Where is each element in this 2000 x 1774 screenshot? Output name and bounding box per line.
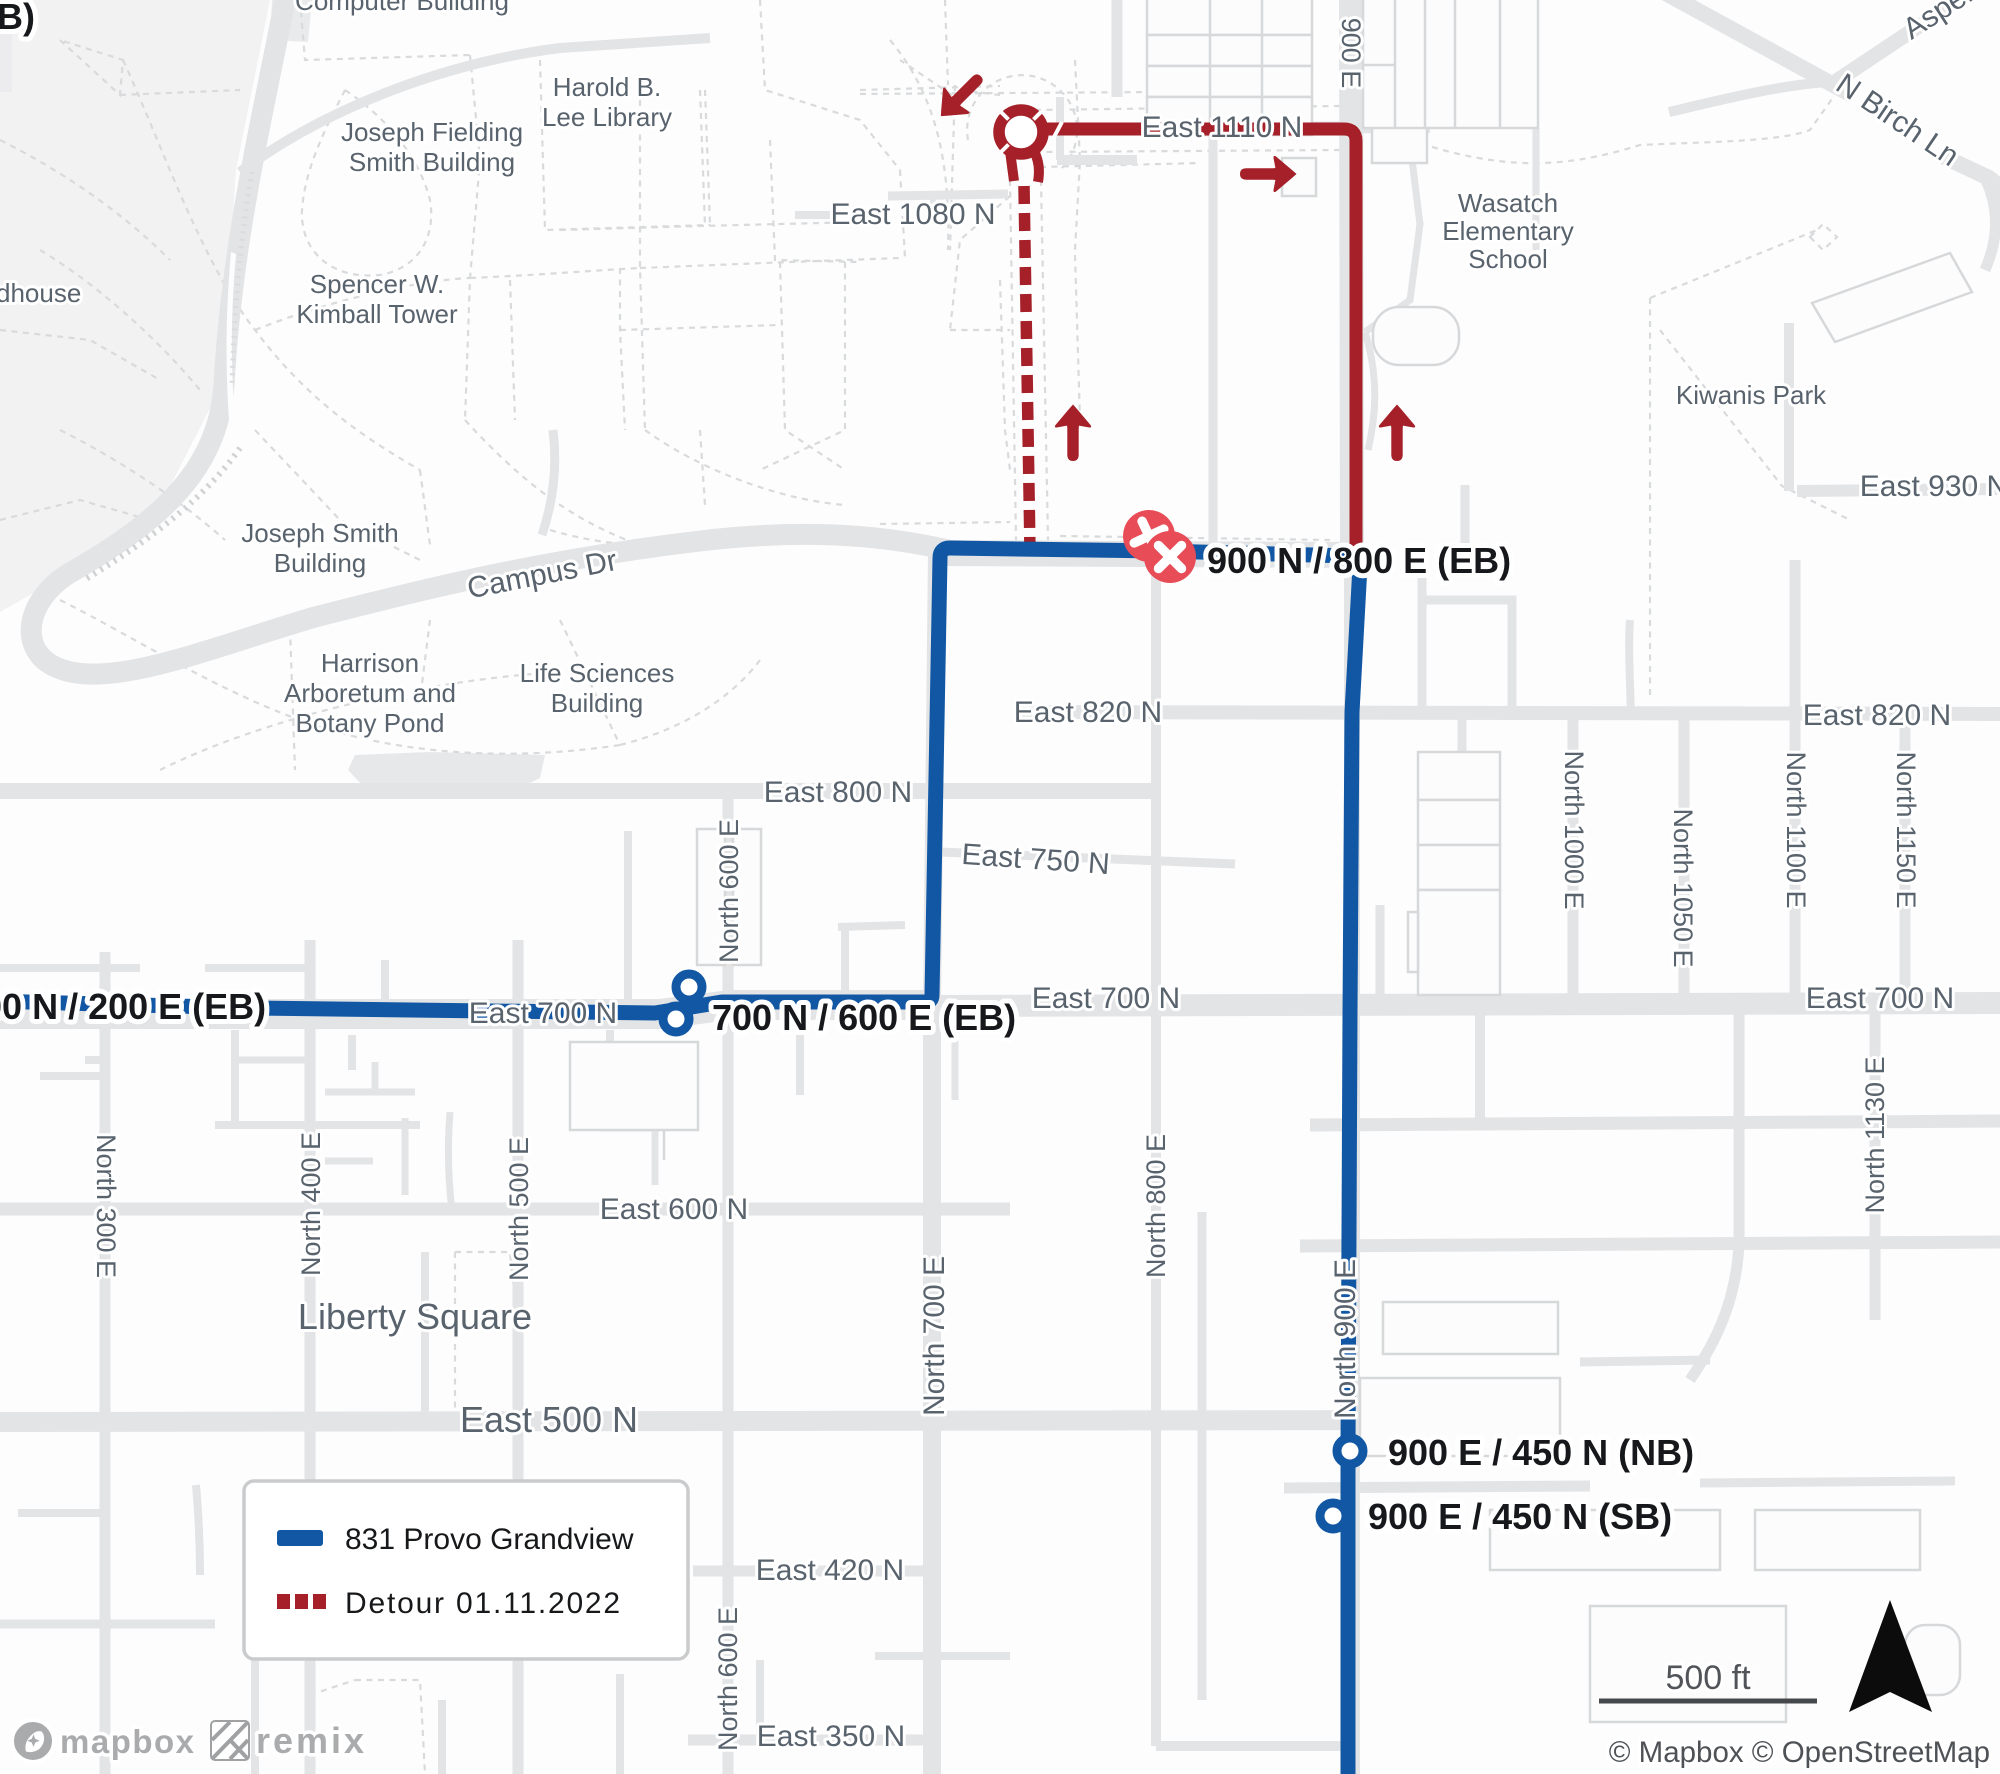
svg-text:Detour 01.11.2022: Detour 01.11.2022 xyxy=(345,1587,622,1620)
svg-text:900 N / 800 E (EB): 900 N / 800 E (EB) xyxy=(1207,540,1511,581)
svg-text:Lee Library: Lee Library xyxy=(542,102,672,132)
svg-text:East 820 N: East 820 N xyxy=(1014,696,1162,729)
svg-text:831 Provo Grandview: 831 Provo Grandview xyxy=(345,1523,634,1556)
svg-text:Joseph Fielding: Joseph Fielding xyxy=(341,117,523,147)
svg-text:Building: Building xyxy=(551,688,644,718)
svg-text:School: School xyxy=(1468,244,1548,274)
svg-text:Kiwanis Park: Kiwanis Park xyxy=(1676,380,1827,410)
svg-text:Smith Building: Smith Building xyxy=(349,147,515,177)
svg-text:East 820 N: East 820 N xyxy=(1803,699,1951,732)
svg-text:North 1100 E: North 1100 E xyxy=(1781,751,1811,908)
svg-text:700 N / 600 E (EB): 700 N / 600 E (EB) xyxy=(712,997,1016,1038)
svg-text:North 700 E: North 700 E xyxy=(918,1256,951,1416)
svg-text:East 420 N: East 420 N xyxy=(756,1554,904,1587)
svg-text:East 600 N: East 600 N xyxy=(600,1193,748,1226)
svg-text:Wasatch: Wasatch xyxy=(1458,188,1558,218)
svg-text:Elementary: Elementary xyxy=(1442,216,1574,246)
svg-text:Harold B.: Harold B. xyxy=(553,72,661,102)
svg-text:Harrison: Harrison xyxy=(321,648,419,678)
svg-text:North 1150 E: North 1150 E xyxy=(1891,751,1921,908)
svg-text:East 700 N: East 700 N xyxy=(469,997,617,1030)
svg-text:Liberty Square: Liberty Square xyxy=(298,1296,532,1337)
svg-text:500 ft: 500 ft xyxy=(1665,1659,1751,1697)
svg-text:North 600 E: North 600 E xyxy=(713,1607,743,1751)
svg-text:Life Sciences: Life Sciences xyxy=(520,658,675,688)
svg-text:East 930 N: East 930 N xyxy=(1860,470,2000,503)
svg-text:Kimball Tower: Kimball Tower xyxy=(296,299,458,329)
svg-text:North 1000 E: North 1000 E xyxy=(1559,750,1589,909)
svg-text:East 800 N: East 800 N xyxy=(764,776,912,809)
svg-text:Building: Building xyxy=(274,548,367,578)
svg-text:North 1050 E: North 1050 E xyxy=(1668,808,1698,967)
svg-text:North 500 E: North 500 E xyxy=(504,1137,534,1281)
svg-text:dhouse: dhouse xyxy=(0,278,81,308)
svg-text:remix: remix xyxy=(256,1720,367,1761)
svg-text:Spencer W.: Spencer W. xyxy=(310,269,444,299)
svg-text:Joseph Smith: Joseph Smith xyxy=(241,518,399,548)
svg-text:Arboretum and: Arboretum and xyxy=(284,678,456,708)
svg-text:East 1080 N: East 1080 N xyxy=(830,198,995,231)
svg-text:East 350 N: East 350 N xyxy=(757,1720,905,1753)
svg-text:B): B) xyxy=(0,0,35,37)
svg-text:900 E / 450 N (SB): 900 E / 450 N (SB) xyxy=(1368,1496,1672,1537)
svg-text:North 400 E: North 400 E xyxy=(296,1132,326,1276)
svg-text:East 700 N: East 700 N xyxy=(1032,982,1180,1015)
svg-text:North 900 E: North 900 E xyxy=(1329,1259,1362,1419)
svg-text:Botany Pond: Botany Pond xyxy=(296,708,445,738)
svg-text:900 E: 900 E xyxy=(1336,18,1366,89)
svg-text:North 1130 E: North 1130 E xyxy=(1860,1056,1890,1213)
svg-text:East 700 N: East 700 N xyxy=(1806,982,1954,1015)
svg-text:© Mapbox © OpenStreetMap: © Mapbox © OpenStreetMap xyxy=(1609,1736,1990,1769)
svg-text:900 E / 450 N (NB): 900 E / 450 N (NB) xyxy=(1388,1432,1694,1473)
svg-text:North 800 E: North 800 E xyxy=(1141,1134,1171,1278)
svg-text:North 600 E: North 600 E xyxy=(714,819,744,963)
svg-text:700 N / 200 E (EB): 700 N / 200 E (EB) xyxy=(0,986,266,1027)
svg-text:East 500 N: East 500 N xyxy=(460,1399,638,1440)
svg-text:mapbox: mapbox xyxy=(60,1723,196,1760)
svg-text:Computer Building: Computer Building xyxy=(295,0,509,16)
svg-text:North 300 E: North 300 E xyxy=(91,1134,121,1278)
svg-text:East 1110 N: East 1110 N xyxy=(1142,111,1303,144)
